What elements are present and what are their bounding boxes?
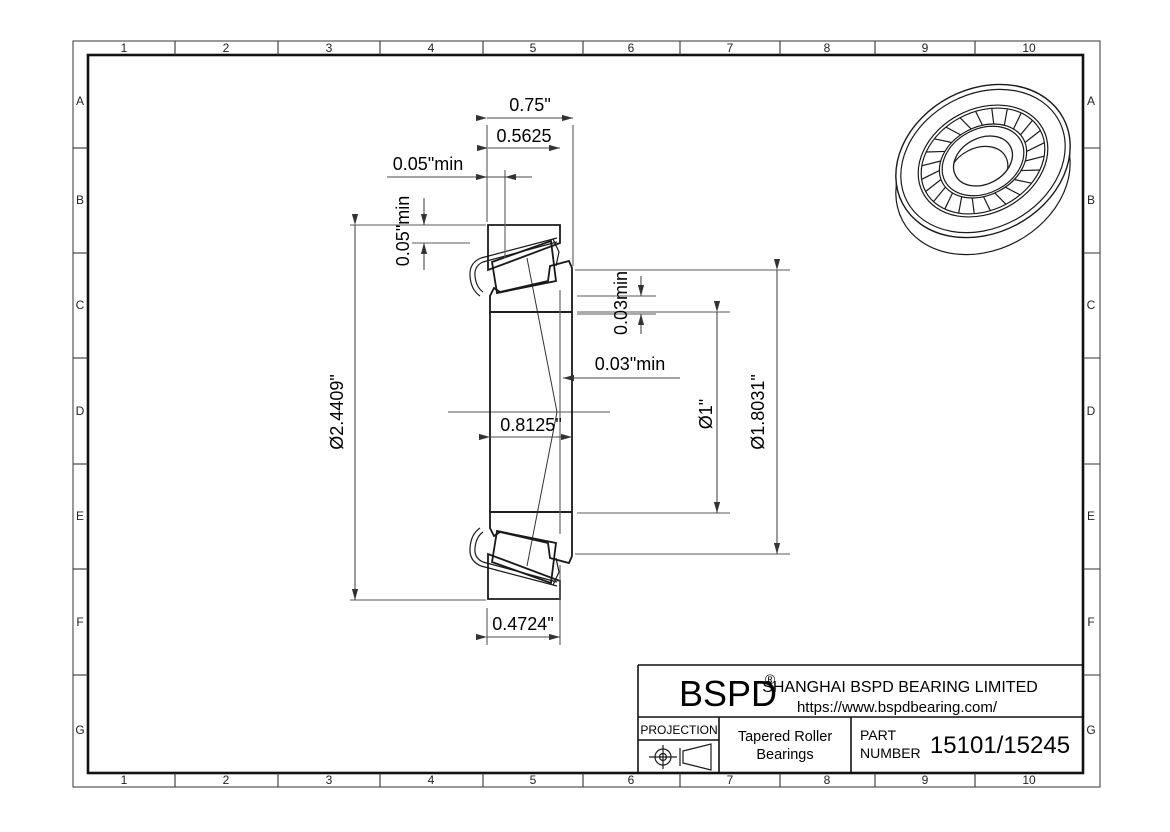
bearing-isometric-view: [862, 55, 1104, 285]
dim-radial-clearance: 0.05"min: [393, 196, 413, 266]
grid-row-label-right: F: [1087, 615, 1094, 629]
dim-cone-width: 0.8125": [500, 415, 561, 435]
company-website: https://www.bspdbearing.com/: [797, 699, 998, 716]
part-number-value: 15101/15245: [930, 732, 1070, 759]
dim-overall-width: 0.75": [509, 95, 550, 115]
extension-lines: [350, 125, 790, 645]
grid-col-label-top: 7: [727, 41, 734, 55]
bearing-section-view: [448, 225, 610, 599]
dim-cup-width: 0.5625: [496, 126, 551, 146]
dim-rib-clearance: 0.03min: [611, 271, 631, 335]
grid-row-label-left: E: [76, 509, 84, 523]
grid-row-label-left: F: [76, 615, 83, 629]
grid-col-label-bottom: 7: [727, 773, 734, 787]
third-angle-projection-icon: [649, 744, 711, 770]
part-label-line1: PART: [860, 727, 896, 743]
grid-row-label-right: C: [1087, 298, 1096, 312]
grid-col-label-bottom: 3: [326, 773, 333, 787]
dimension-lines: [355, 118, 777, 637]
projection-label: PROJECTION: [640, 723, 717, 737]
grid-col-label-bottom: 8: [824, 773, 831, 787]
grid-col-label-bottom: 9: [922, 773, 929, 787]
grid-col-label-bottom: 10: [1022, 773, 1036, 787]
cup-section-lower: [488, 554, 560, 599]
cage-lower: [470, 528, 559, 586]
grid-row-label-right: B: [1087, 193, 1095, 207]
grid-row-label-left: G: [75, 723, 84, 737]
grid-row-label-right: G: [1086, 723, 1095, 737]
dim-cup-front-width: 0.4724": [492, 614, 553, 634]
grid-col-label-top: 5: [530, 41, 537, 55]
grid-row-label-right: D: [1087, 404, 1096, 418]
grid-col-label-top: 8: [824, 41, 831, 55]
engineering-drawing: 1122334455667788991010AABBCCDDEEFFGG: [0, 0, 1170, 827]
grid-col-label-top: 9: [922, 41, 929, 55]
company-name: SHANGHAI BSPD BEARING LIMITED: [762, 679, 1038, 696]
dim-outer-diameter: Ø2.4409": [327, 374, 347, 449]
grid-row-label-left: C: [76, 298, 85, 312]
grid-col-label-bottom: 6: [628, 773, 635, 787]
grid-row-label-left: D: [76, 404, 85, 418]
grid-row-label-left: A: [76, 94, 84, 108]
grid-col-label-top: 10: [1022, 41, 1036, 55]
grid-col-label-bottom: 4: [428, 773, 435, 787]
grid-row-label-right: A: [1087, 94, 1095, 108]
product-type-line1: Tapered Roller: [738, 729, 832, 745]
grid-col-label-top: 6: [628, 41, 635, 55]
dim-bore-diameter: Ø1": [696, 399, 716, 429]
grid-row-label-left: B: [76, 193, 84, 207]
grid-col-label-top: 4: [428, 41, 435, 55]
grid-col-label-top: 1: [121, 41, 128, 55]
grid-col-label-top: 3: [326, 41, 333, 55]
grid-col-label-top: 2: [223, 41, 230, 55]
dimension-annotations: 0.75" 0.5625 0.05"min 0.05"min Ø2.4409" …: [327, 95, 790, 645]
title-block: BSPD ® SHANGHAI BSPD BEARING LIMITED htt…: [638, 665, 1083, 773]
part-label-line2: NUMBER: [860, 745, 921, 761]
drawing-sheet: 1122334455667788991010AABBCCDDEEFFGG: [0, 0, 1170, 827]
grid-col-label-bottom: 1: [121, 773, 128, 787]
cup-section-upper: [488, 225, 560, 270]
grid-col-label-bottom: 5: [530, 773, 537, 787]
cage-upper: [470, 238, 559, 296]
dim-cup-race-diameter: Ø1.8031": [748, 374, 768, 449]
grid-row-label-right: E: [1087, 509, 1095, 523]
product-type-line2: Bearings: [756, 747, 813, 763]
dim-back-clearance: 0.03"min: [595, 354, 665, 374]
grid-col-label-bottom: 2: [223, 773, 230, 787]
dim-front-clearance: 0.05"min: [393, 154, 463, 174]
